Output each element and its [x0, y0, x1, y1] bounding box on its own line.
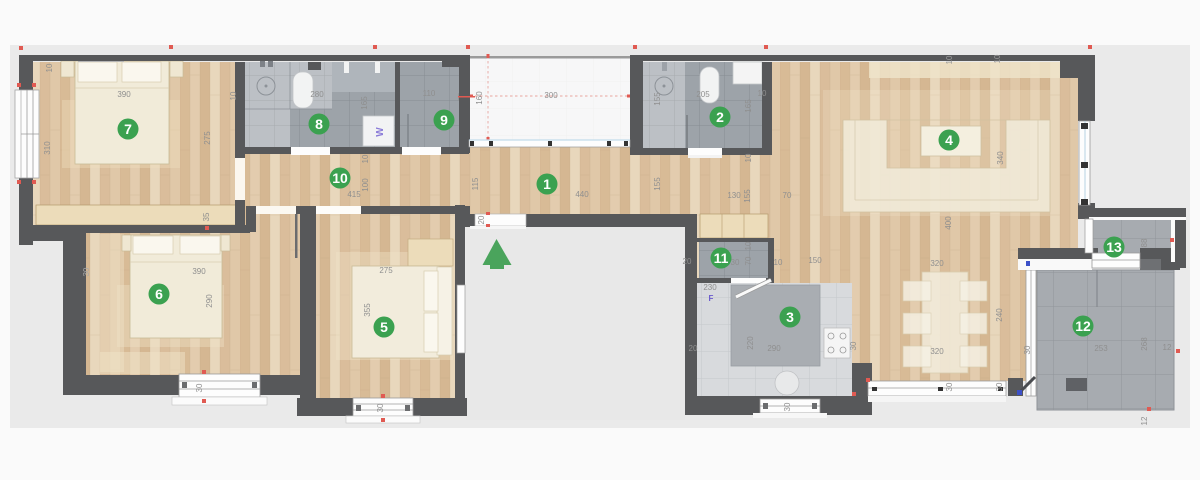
svg-text:35: 35	[202, 212, 211, 221]
svg-text:W: W	[375, 127, 386, 137]
svg-text:12: 12	[1075, 318, 1091, 334]
svg-text:30: 30	[731, 258, 740, 267]
svg-text:340: 340	[996, 151, 1005, 165]
svg-text:320: 320	[930, 259, 944, 268]
svg-text:30: 30	[195, 383, 204, 392]
svg-text:220: 220	[746, 336, 755, 350]
svg-text:440: 440	[575, 190, 589, 199]
svg-text:155: 155	[653, 177, 662, 191]
svg-text:10: 10	[758, 89, 767, 98]
svg-text:253: 253	[1094, 344, 1108, 353]
svg-text:415: 415	[347, 190, 361, 199]
svg-text:30: 30	[376, 403, 385, 412]
svg-text:268: 268	[1140, 337, 1149, 351]
svg-text:300: 300	[544, 91, 558, 100]
svg-text:70: 70	[783, 191, 792, 200]
svg-text:70: 70	[744, 256, 753, 265]
svg-text:400: 400	[944, 216, 953, 230]
svg-text:165: 165	[360, 96, 369, 110]
svg-text:30: 30	[783, 402, 792, 411]
svg-text:F: F	[709, 294, 714, 303]
svg-text:10: 10	[332, 170, 348, 186]
svg-text:12: 12	[1140, 416, 1149, 425]
svg-text:9: 9	[440, 112, 448, 128]
svg-text:8: 8	[315, 116, 323, 132]
svg-text:165: 165	[744, 99, 753, 113]
svg-text:150: 150	[808, 256, 822, 265]
svg-text:13: 13	[1106, 239, 1122, 255]
svg-text:10: 10	[229, 91, 238, 100]
svg-text:290: 290	[205, 294, 214, 308]
svg-text:275: 275	[379, 266, 393, 275]
svg-text:1: 1	[543, 176, 551, 192]
svg-text:30: 30	[945, 382, 954, 391]
svg-text:230: 230	[703, 283, 717, 292]
svg-text:20: 20	[477, 215, 486, 224]
svg-text:205: 205	[696, 90, 710, 99]
svg-text:30: 30	[995, 382, 1004, 391]
svg-text:20: 20	[689, 344, 698, 353]
svg-text:160: 160	[475, 91, 484, 105]
svg-text:88: 88	[1140, 238, 1149, 247]
svg-text:10: 10	[361, 154, 370, 163]
svg-text:30: 30	[1023, 345, 1032, 354]
svg-text:7: 7	[124, 121, 132, 137]
svg-text:10: 10	[993, 54, 1002, 63]
svg-text:240: 240	[995, 308, 1004, 322]
svg-text:110: 110	[423, 89, 436, 98]
svg-text:2: 2	[716, 109, 724, 125]
svg-text:5: 5	[380, 319, 388, 335]
svg-text:355: 355	[363, 303, 372, 317]
svg-text:155: 155	[653, 92, 662, 106]
svg-text:115: 115	[471, 177, 480, 190]
svg-text:4: 4	[945, 132, 953, 148]
svg-text:10: 10	[45, 63, 54, 72]
svg-text:10: 10	[744, 241, 753, 250]
svg-text:100: 100	[361, 178, 370, 192]
svg-text:30: 30	[849, 341, 858, 350]
svg-text:30: 30	[82, 267, 91, 276]
svg-text:310: 310	[43, 141, 52, 155]
svg-text:10: 10	[945, 55, 954, 64]
svg-text:3: 3	[786, 309, 794, 325]
svg-text:155: 155	[743, 189, 752, 203]
svg-text:275: 275	[203, 131, 212, 145]
svg-text:10: 10	[774, 258, 783, 267]
svg-text:12: 12	[1163, 343, 1172, 352]
svg-text:390: 390	[192, 267, 206, 276]
svg-text:130: 130	[727, 191, 741, 200]
svg-text:280: 280	[310, 90, 324, 99]
svg-text:290: 290	[767, 344, 781, 353]
svg-text:6: 6	[155, 286, 163, 302]
svg-text:11: 11	[714, 250, 729, 266]
svg-text:10: 10	[744, 153, 753, 162]
svg-text:20: 20	[683, 257, 692, 266]
svg-text:320: 320	[930, 347, 944, 356]
svg-text:390: 390	[117, 90, 131, 99]
